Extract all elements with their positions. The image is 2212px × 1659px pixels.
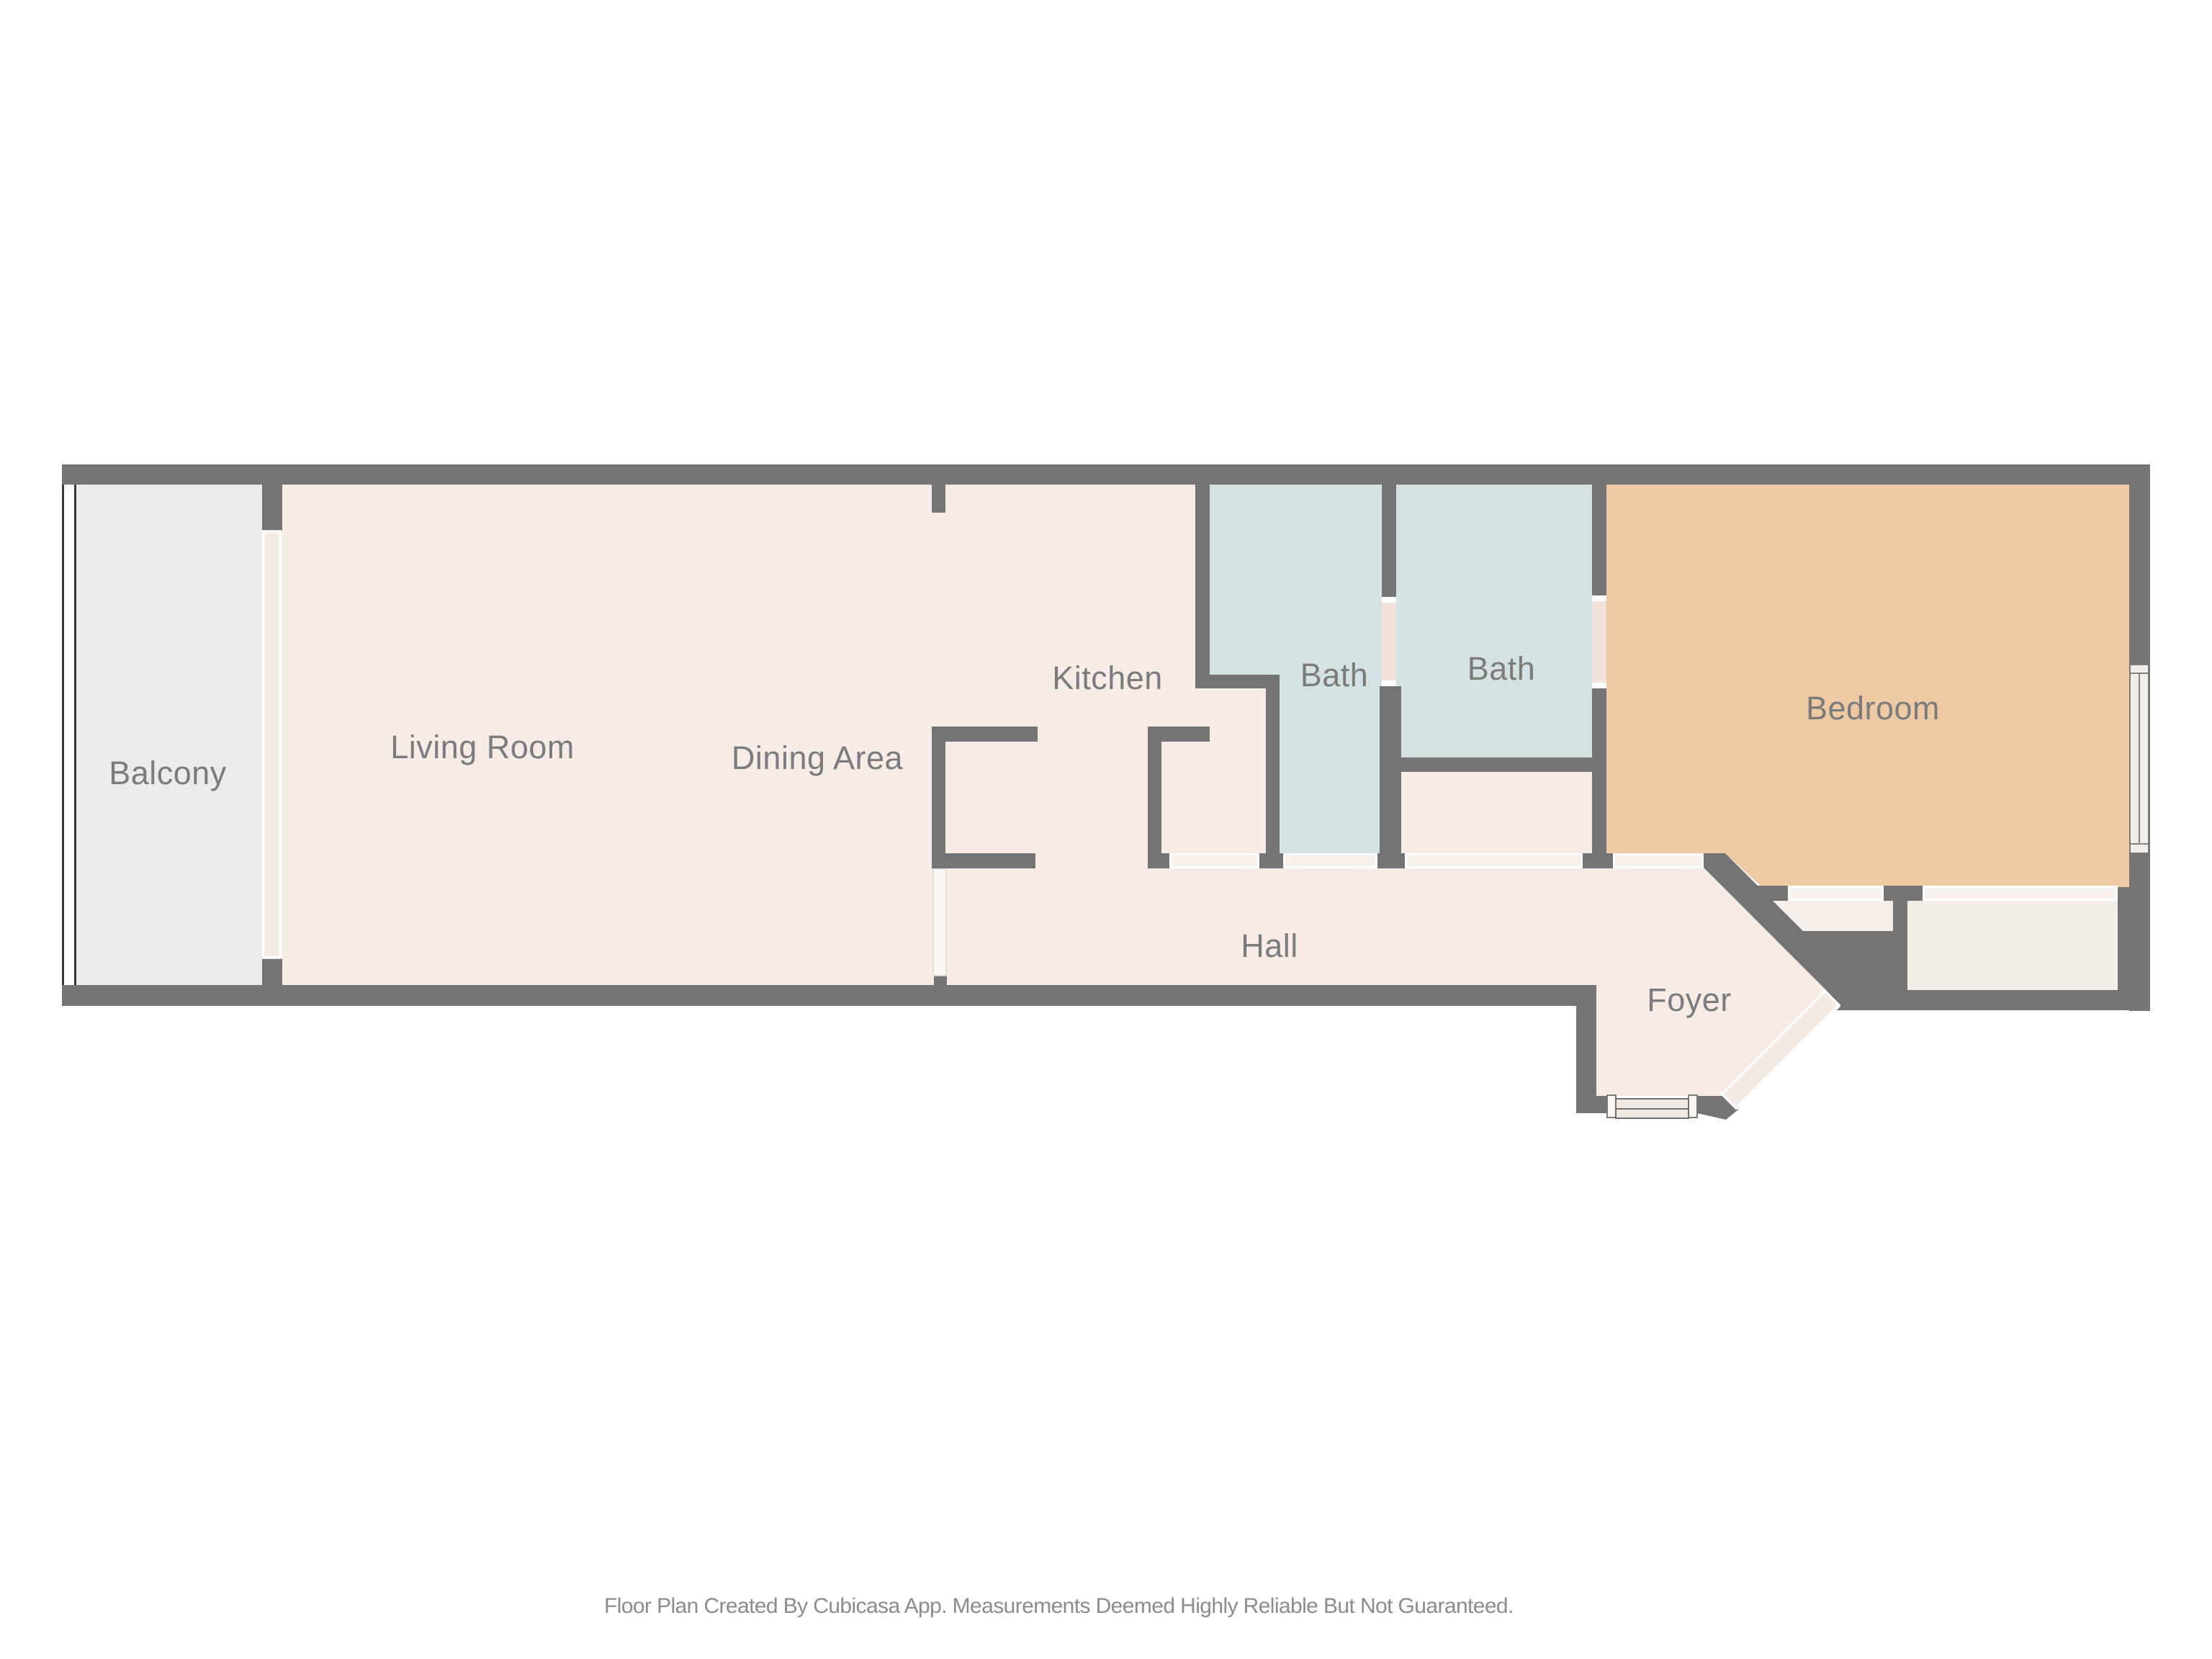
- svg-text:Dining Area: Dining Area: [732, 739, 904, 776]
- svg-text:Bedroom: Bedroom: [1806, 690, 1940, 727]
- svg-text:Bath: Bath: [1300, 657, 1369, 693]
- svg-text:Living Room: Living Room: [390, 729, 575, 765]
- svg-text:Hall: Hall: [1241, 927, 1298, 964]
- svg-text:Floor Plan Created By Cubicasa: Floor Plan Created By Cubicasa App. Meas…: [604, 1594, 1514, 1618]
- svg-text:Kitchen: Kitchen: [1052, 660, 1163, 696]
- svg-text:Balcony: Balcony: [109, 755, 227, 791]
- svg-text:Foyer: Foyer: [1647, 981, 1732, 1018]
- svg-text:Bath: Bath: [1467, 650, 1536, 687]
